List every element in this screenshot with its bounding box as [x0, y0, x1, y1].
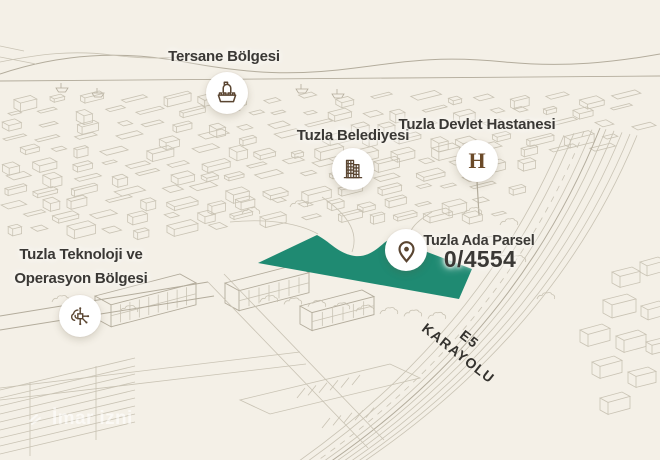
marker-parsel-pin[interactable] — [385, 229, 427, 271]
label-parsel-number: 0/4554 — [444, 247, 516, 271]
location-pin-icon — [393, 237, 420, 264]
tech-circuit-icon — [66, 302, 94, 330]
label-belediye: Tuzla Belediyesi — [297, 124, 409, 148]
hospital-h-icon: H — [468, 150, 485, 172]
marker-hastane[interactable]: H — [456, 140, 498, 182]
label-teknoloji-line2: Operasyon Bölgesi — [14, 267, 147, 291]
map: H Tersane Bölges — [0, 0, 660, 460]
label-hastane: Tuzla Devlet Hastanesi — [398, 113, 555, 137]
watermark-logo-icon — [28, 410, 46, 428]
watermark-text: İmar izni — [52, 408, 133, 430]
label-teknoloji-line1: Tuzla Teknoloji ve — [14, 243, 147, 267]
ship-icon — [213, 79, 241, 107]
map-illustration — [0, 0, 660, 460]
marker-tersane[interactable] — [206, 72, 248, 114]
label-teknoloji: Tuzla Teknoloji ve Operasyon Bölgesi — [14, 243, 147, 291]
marker-teknoloji[interactable] — [59, 295, 101, 337]
watermark: İmar izni — [28, 408, 133, 430]
municipality-building-icon — [339, 155, 367, 183]
label-tersane: Tersane Bölgesi — [168, 45, 280, 69]
marker-belediye[interactable] — [332, 148, 374, 190]
